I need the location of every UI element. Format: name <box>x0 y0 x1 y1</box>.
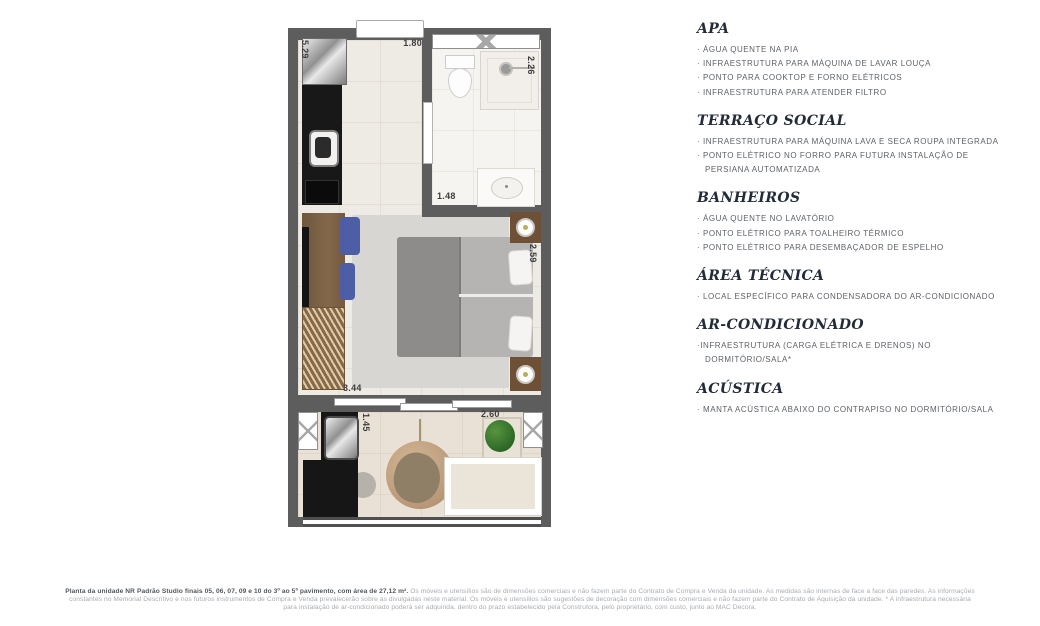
bathroom-vanity <box>477 168 535 207</box>
shaft-left-icon <box>298 412 318 450</box>
section-title: ÁREA TÉCNICA <box>697 269 1000 284</box>
spec-section-banheiros: BANHEIROS · ÁGUA QUENTE NO LAVATÓRIO · P… <box>697 191 1000 255</box>
section-title: TERRAÇO SOCIAL <box>697 114 1000 129</box>
spec-list: APA · ÁGUA QUENTE NA PIA · INFRAESTRUTUR… <box>697 22 1000 431</box>
disclaimer-lead: Planta da unidade NR Padrão Studio finai… <box>65 588 408 595</box>
dimension-label: 1.48 <box>437 191 456 201</box>
vanity-faucet-icon <box>505 185 508 188</box>
bed <box>397 237 533 357</box>
kitchen-sink <box>309 130 339 167</box>
spec-item: · PONTO ELÉTRICO NO FORRO PARA FUTURA IN… <box>697 149 1000 177</box>
spec-item: · INFRAESTRUTURA PARA MÁQUINA LAVA E SEC… <box>697 135 1000 149</box>
terrace-bench <box>445 458 541 515</box>
spec-section-acustica: ACÚSTICA · MANTA ACÚSTICA ABAIXO DO CONT… <box>697 382 1000 417</box>
laundry-tank-sink <box>324 416 359 460</box>
spec-item: · ÁGUA QUENTE NO LAVATÓRIO <box>697 212 1000 226</box>
dimension-label: 1.45 <box>361 413 371 432</box>
spec-item: · MANTA ACÚSTICA ABAIXO DO CONTRAPISO NO… <box>697 403 1000 417</box>
tv <box>302 227 309 313</box>
terrace-window <box>303 517 541 527</box>
dimension-label: 2.60 <box>481 409 500 419</box>
lamp-icon <box>516 218 535 237</box>
lamp-icon <box>516 365 535 384</box>
section-title: ACÚSTICA <box>697 382 1000 397</box>
dimension-label: 3.44 <box>343 383 362 393</box>
section-title: AR-CONDICIONADO <box>697 318 1000 333</box>
bathroom-door <box>423 102 433 164</box>
dimension-label: 1.80 <box>394 38 422 48</box>
disclaimer: Planta da unidade NR Padrão Studio finai… <box>62 588 978 612</box>
pillow <box>508 315 533 352</box>
terrace-sliding-door-panel <box>452 400 512 408</box>
shower-head-icon <box>499 62 513 76</box>
nightstand <box>510 212 541 243</box>
spec-item: · PONTO PARA COOKTOP E FORNO ELÉTRICOS <box>697 71 1000 85</box>
dimension-label: 2.26 <box>526 56 536 75</box>
spec-section-terraco-social: TERRAÇO SOCIAL · INFRAESTRUTURA PARA MÁQ… <box>697 114 1000 178</box>
terrace-sliding-door-panel <box>400 403 458 411</box>
spec-item: · PONTO ELÉTRICO PARA DESEMBAÇADOR DE ES… <box>697 241 1000 255</box>
floor-cushion <box>340 217 360 255</box>
toilet <box>445 55 473 98</box>
wall-right <box>541 28 551 527</box>
wall-bottom-stub <box>288 517 304 527</box>
hanging-chair-strap <box>419 419 421 443</box>
toilet-bowl <box>448 68 472 98</box>
clothes-rack <box>302 307 345 390</box>
spec-item: · INFRAESTRUTURA PARA ATENDER FILTRO <box>697 86 1000 100</box>
spec-section-ar-condicionado: AR-CONDICIONADO ·INFRAESTRUTURA (CARGA E… <box>697 318 1000 367</box>
shaft-top-icon <box>432 34 540 49</box>
nightstand <box>510 357 541 391</box>
terrace-sliding-door-panel <box>334 398 406 406</box>
spec-section-apa: APA · ÁGUA QUENTE NA PIA · INFRAESTRUTUR… <box>697 22 1000 100</box>
spec-item: · INFRAESTRUTURA PARA MÁQUINA DE LAVAR L… <box>697 57 1000 71</box>
bed-blanket <box>397 237 461 357</box>
shaft-right-icon <box>523 412 543 448</box>
wall-left <box>288 28 298 527</box>
spec-section-area-tecnica: ÁREA TÉCNICA · LOCAL ESPECÍFICO PARA CON… <box>697 269 1000 304</box>
hanging-chair <box>386 441 454 509</box>
cooktop <box>305 180 339 204</box>
plant-pot <box>482 417 522 459</box>
vanity-basin <box>491 177 523 199</box>
spec-item: · LOCAL ESPECÍFICO PARA CONDENSADORA DO … <box>697 290 1000 304</box>
bed-sheet-line <box>459 294 533 297</box>
spec-item: · ÁGUA QUENTE NA PIA <box>697 43 1000 57</box>
floor-plan: 5.29 1.80 2.26 1.48 2.59 3.44 1.45 2.60 <box>288 20 551 528</box>
spec-item: · PONTO ELÉTRICO PARA TOALHEIRO TÉRMICO <box>697 227 1000 241</box>
sink-basin <box>315 137 331 158</box>
plant-icon <box>485 420 515 452</box>
section-title: APA <box>697 22 1000 37</box>
laundry-counter <box>303 460 321 517</box>
hanging-chair-seat <box>388 448 445 508</box>
dimension-label: 2.59 <box>528 244 538 263</box>
toilet-tank <box>445 55 475 69</box>
entry-door <box>356 20 424 38</box>
spec-item: ·INFRAESTRUTURA (CARGA ELÉTRICA E DRENOS… <box>697 339 1000 367</box>
dimension-label: 5.29 <box>300 40 310 59</box>
section-title: BANHEIROS <box>697 191 1000 206</box>
floor-cushion <box>340 263 355 300</box>
